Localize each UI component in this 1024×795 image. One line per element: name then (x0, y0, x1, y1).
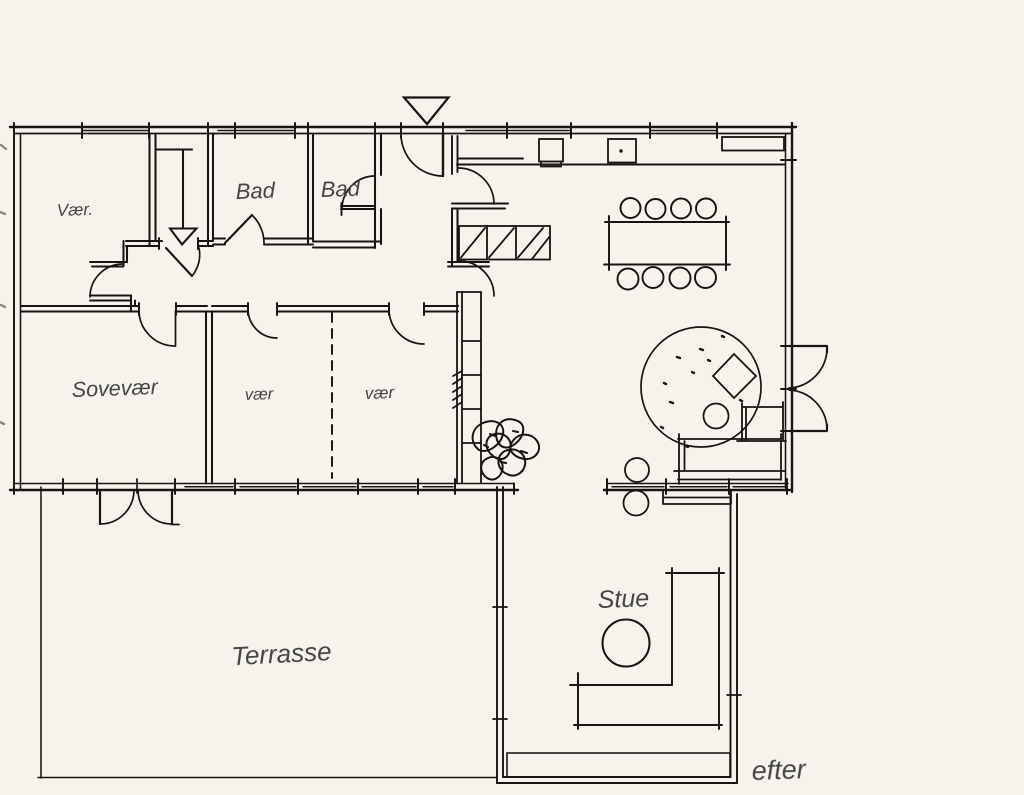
svg-text:vær: vær (364, 383, 395, 403)
svg-text:Sovevær: Sovevær (71, 375, 159, 402)
svg-text:Terrasse: Terrasse (231, 636, 333, 671)
svg-text:efter: efter (751, 754, 807, 786)
svg-text:Stue: Stue (597, 584, 649, 614)
svg-text:Vær.: Vær. (56, 200, 93, 220)
svg-text:vær: vær (245, 385, 276, 404)
svg-text:Bad: Bad (320, 176, 361, 202)
svg-text:Bad: Bad (235, 178, 276, 204)
